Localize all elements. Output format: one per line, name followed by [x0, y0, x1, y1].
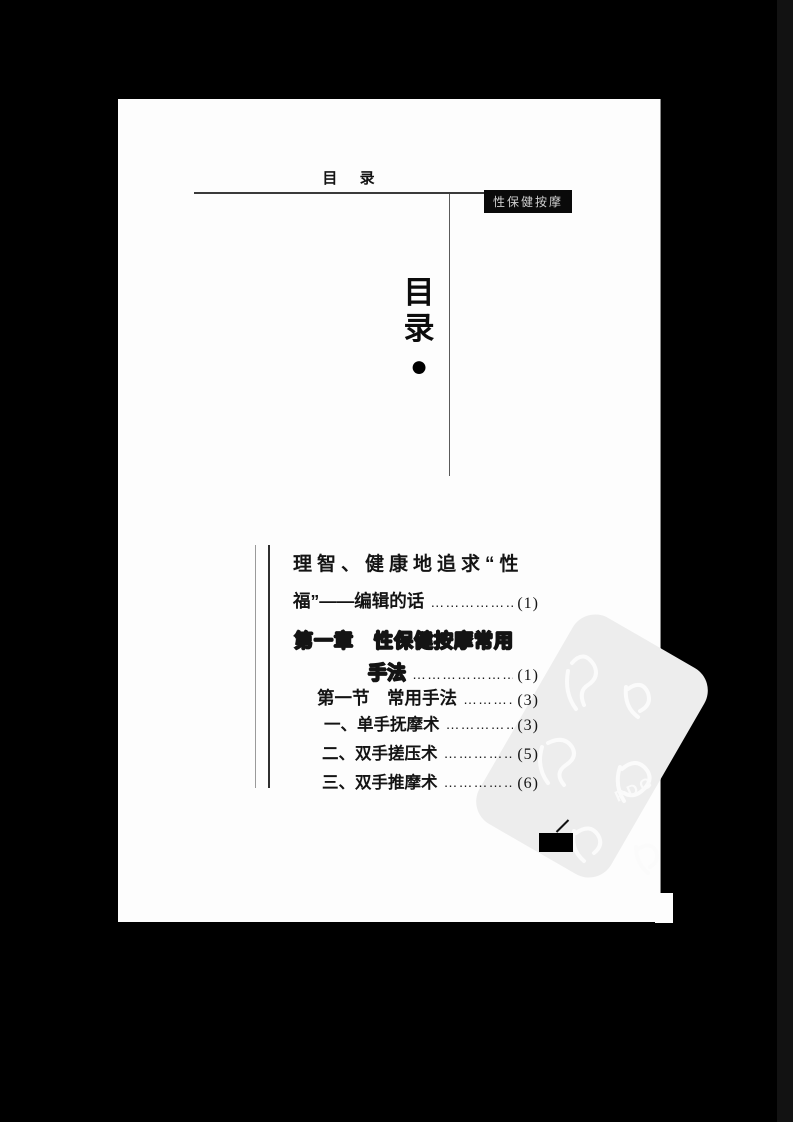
vertical-title-char-lu: 录 [399, 311, 439, 347]
page-header-title: 目 录 [293, 167, 413, 188]
toc-page-number: (5) [517, 746, 539, 764]
toc-entry-text: 福”——编辑的话 [293, 588, 424, 613]
toc-entry-text: 手法 [368, 658, 406, 685]
toc-page-number: (3) [517, 692, 539, 710]
dot-leader: …………………………… [444, 743, 514, 763]
vertical-title-char-mu: 目 [399, 275, 439, 311]
book-page: PDG 目 录 性保健按摩 目 录 ● 理智、健康地追求“性 福”——编辑的话 … [118, 99, 661, 922]
toc-entry-chapter1-line2: 手法 …………………………… (1) [368, 658, 539, 685]
toc-page-number: (3) [517, 717, 539, 735]
toc-entry-preface-line2: 福”——编辑的话 …………………………… (1) [293, 588, 539, 613]
toc-page-number: (1) [517, 595, 539, 613]
toc-entry-text: 第一节 常用手法 [317, 685, 457, 710]
toc-entry-section1: 第一节 常用手法 …………………………… (3) [317, 685, 539, 710]
black-index-tab [539, 833, 573, 852]
book-title-corner-tab: 性保健按摩 [484, 190, 572, 213]
dot-leader: …………………………… [444, 772, 514, 792]
dot-leader: …………………………… [446, 714, 514, 734]
toc-page-number: (1) [517, 667, 539, 685]
center-vertical-rule [449, 194, 450, 476]
toc-entry-text: 理智、健康地追求“性 [293, 549, 524, 576]
toc-entry-preface-line1: 理智、健康地追求“性 [293, 549, 539, 576]
vertical-title: 目 录 ● [399, 275, 439, 387]
toc-left-rule-outer [255, 545, 256, 788]
toc-entry-item1: 一、单手抚摩术 …………………………… (3) [324, 711, 539, 735]
toc-entry-item3: 三、双手推摩术 …………………………… (6) [322, 769, 539, 793]
toc-left-rule-inner [268, 545, 270, 788]
toc-entry-item2: 二、双手搓压术 …………………………… (5) [322, 740, 539, 764]
toc-page-number: (6) [517, 775, 539, 793]
toc-entry-text: 第一章 性保健按摩常用 [294, 626, 514, 653]
dot-leader: …………………………… [463, 689, 513, 709]
toc-entry-text: 三、双手推摩术 [322, 769, 438, 793]
toc-entry-chapter1-line1: 第一章 性保健按摩常用 [294, 626, 540, 653]
dot-leader: …………………………… [412, 664, 513, 684]
vertical-title-bullet: ● [399, 347, 439, 387]
toc-entry-text: 一、单手抚摩术 [324, 711, 440, 735]
scan-edge-strip [777, 0, 793, 1122]
toc-entry-text: 二、双手搓压术 [322, 740, 438, 764]
dot-leader: …………………………… [430, 592, 513, 612]
